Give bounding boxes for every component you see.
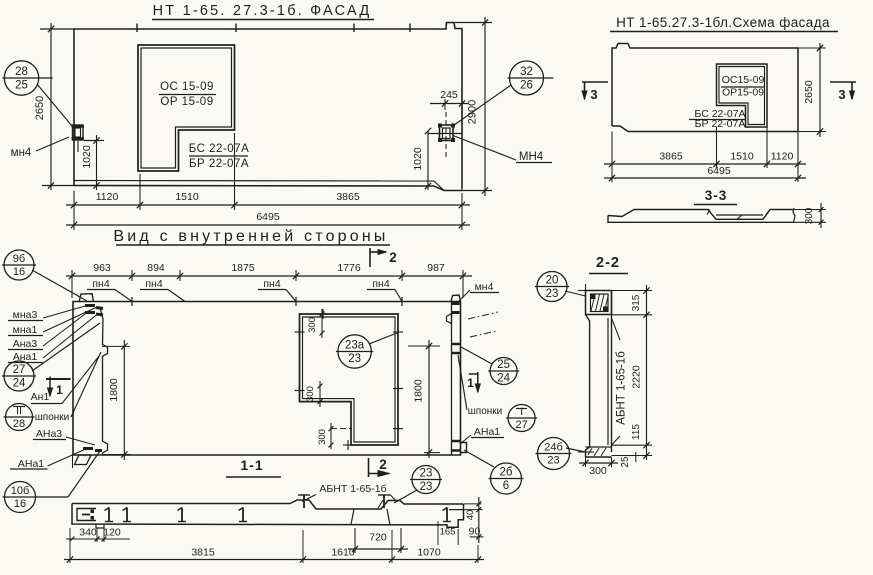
svg-text:1510: 1510 <box>730 151 754 163</box>
svg-text:23: 23 <box>420 468 433 480</box>
svg-text:40: 40 <box>465 510 476 521</box>
svg-text:3865: 3865 <box>659 151 683 163</box>
svg-text:16: 16 <box>13 266 25 278</box>
svg-text:10б: 10б <box>11 485 30 497</box>
svg-text:16: 16 <box>14 498 26 510</box>
svg-text:1020: 1020 <box>81 145 93 169</box>
svg-text:300: 300 <box>307 317 318 333</box>
svg-text:Вид с внутренней стороны: Вид с внутренней стороны <box>113 228 388 245</box>
svg-text:2220: 2220 <box>631 365 643 389</box>
svg-text:Ана3: Ана3 <box>13 338 38 350</box>
svg-text:АНа3: АНа3 <box>36 428 62 440</box>
svg-text:мна1: мна1 <box>13 324 38 336</box>
svg-text:2: 2 <box>379 457 387 472</box>
svg-text:Ан1: Ан1 <box>31 391 50 403</box>
svg-text:720: 720 <box>369 532 387 544</box>
svg-text:6: 6 <box>503 480 509 492</box>
svg-text:27: 27 <box>515 419 527 431</box>
svg-text:1776: 1776 <box>337 262 361 274</box>
svg-text:1510: 1510 <box>175 191 199 203</box>
svg-text:115: 115 <box>631 424 642 440</box>
svg-text:ОС 15-09: ОС 15-09 <box>160 81 214 93</box>
svg-text:3: 3 <box>838 87 845 102</box>
svg-text:АНа1: АНа1 <box>18 458 44 470</box>
svg-text:1-1: 1-1 <box>240 457 263 473</box>
svg-text:АБНТ 1-65-1б: АБНТ 1-65-1б <box>319 483 386 495</box>
svg-text:987: 987 <box>427 262 445 274</box>
svg-text:шпонки: шпонки <box>468 406 502 417</box>
svg-text:9б: 9б <box>13 253 25 265</box>
svg-text:мн4: мн4 <box>475 281 494 293</box>
svg-text:26: 26 <box>520 80 533 92</box>
svg-text:2б: 2б <box>500 467 513 479</box>
svg-text:2: 2 <box>389 250 397 265</box>
svg-text:300: 300 <box>804 207 815 224</box>
svg-text:мна3: мна3 <box>13 309 38 321</box>
svg-text:25: 25 <box>620 456 631 468</box>
svg-text:2650: 2650 <box>803 80 815 104</box>
svg-text:894: 894 <box>147 262 165 274</box>
svg-text:24б: 24б <box>544 442 563 454</box>
svg-text:32: 32 <box>520 66 533 78</box>
svg-text:23: 23 <box>546 288 559 300</box>
svg-text:МН4: МН4 <box>519 151 544 163</box>
svg-text:ОР 15-09: ОР 15-09 <box>160 96 213 108</box>
svg-text:1875: 1875 <box>231 262 255 274</box>
svg-text:пн4: пн4 <box>263 278 280 290</box>
svg-text:1800: 1800 <box>413 379 425 403</box>
svg-text:шпонки: шпонки <box>35 412 69 423</box>
svg-text:23: 23 <box>348 353 361 365</box>
svg-text:300: 300 <box>317 429 328 445</box>
svg-text:2-2: 2-2 <box>596 255 620 271</box>
svg-text:3865: 3865 <box>336 191 360 203</box>
svg-text:пн4: пн4 <box>145 278 162 290</box>
svg-text:245: 245 <box>440 89 458 101</box>
svg-text:120: 120 <box>103 527 121 539</box>
svg-text:1070: 1070 <box>417 547 441 559</box>
svg-text:25: 25 <box>15 80 28 92</box>
svg-text:25: 25 <box>497 359 510 371</box>
svg-text:6495: 6495 <box>707 165 731 177</box>
svg-text:90: 90 <box>469 526 481 538</box>
svg-text:27: 27 <box>13 364 26 376</box>
svg-text:28: 28 <box>13 418 25 430</box>
svg-text:23: 23 <box>547 455 559 467</box>
svg-text:20: 20 <box>546 275 559 287</box>
svg-text:340: 340 <box>79 527 97 539</box>
svg-text:24: 24 <box>13 378 26 390</box>
svg-text:1120: 1120 <box>771 151 794 163</box>
svg-text:ОР15-09: ОР15-09 <box>722 87 764 99</box>
svg-text:пн4: пн4 <box>372 278 389 290</box>
svg-text:28: 28 <box>15 66 28 78</box>
svg-text:ОС15-09: ОС15-09 <box>722 74 765 86</box>
svg-text:315: 315 <box>631 294 642 311</box>
svg-text:23: 23 <box>420 481 433 493</box>
svg-text:мн4: мн4 <box>11 147 32 159</box>
svg-text:300: 300 <box>589 465 607 477</box>
svg-text:963: 963 <box>93 262 111 274</box>
svg-text:1: 1 <box>56 383 63 397</box>
svg-text:165: 165 <box>440 527 456 538</box>
svg-text:1020: 1020 <box>412 147 424 171</box>
svg-text:АНа1: АНа1 <box>474 426 500 438</box>
svg-text:3-3: 3-3 <box>705 188 728 203</box>
svg-text:1610: 1610 <box>331 547 355 559</box>
svg-text:3815: 3815 <box>191 547 215 559</box>
svg-text:АБНТ 1-65-1б: АБНТ 1-65-1б <box>616 351 628 425</box>
svg-text:БР 22-07А: БР 22-07А <box>695 118 746 130</box>
svg-text:2650: 2650 <box>34 96 46 120</box>
svg-text:БР 22-07А: БР 22-07А <box>189 158 249 170</box>
svg-text:3: 3 <box>590 87 597 102</box>
svg-text:1800: 1800 <box>108 378 120 402</box>
svg-text:пн4: пн4 <box>92 278 109 290</box>
svg-text:1120: 1120 <box>96 191 119 203</box>
svg-text:24: 24 <box>497 373 510 385</box>
svg-text:6495: 6495 <box>256 211 280 223</box>
svg-text:НТ 1-65. 27.3-1б. ФАСАД: НТ 1-65. 27.3-1б. ФАСАД <box>153 3 372 19</box>
svg-text:23а: 23а <box>345 340 365 352</box>
svg-text:I: I <box>520 406 523 418</box>
svg-text:НТ 1-65.27.3-1бл.Схема фасада: НТ 1-65.27.3-1бл.Схема фасада <box>616 15 830 30</box>
svg-text:БС 22-07А: БС 22-07А <box>189 143 250 155</box>
svg-text:300: 300 <box>305 386 316 402</box>
svg-text:1: 1 <box>467 376 474 390</box>
